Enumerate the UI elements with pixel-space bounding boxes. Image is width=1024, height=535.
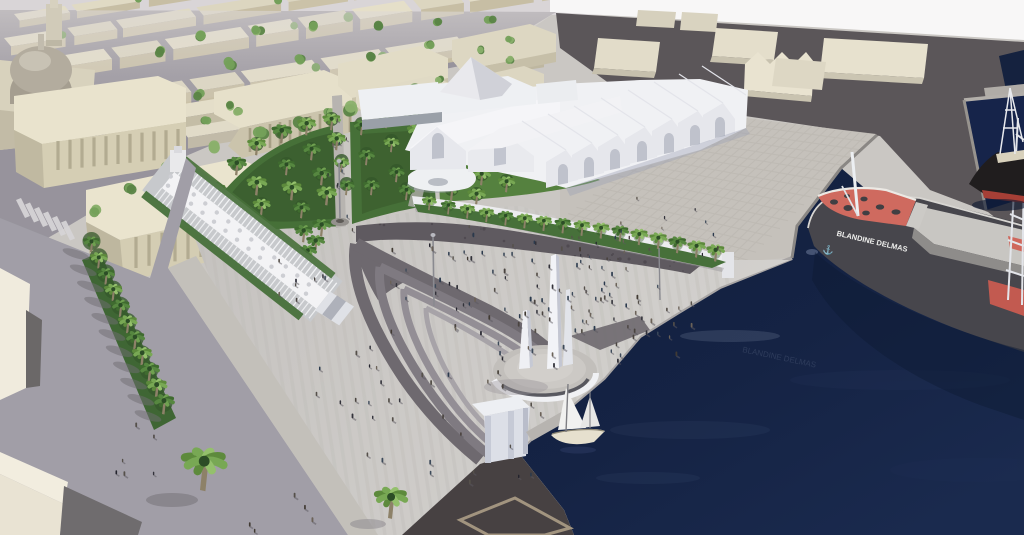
svg-text:⚓: ⚓	[822, 243, 835, 256]
